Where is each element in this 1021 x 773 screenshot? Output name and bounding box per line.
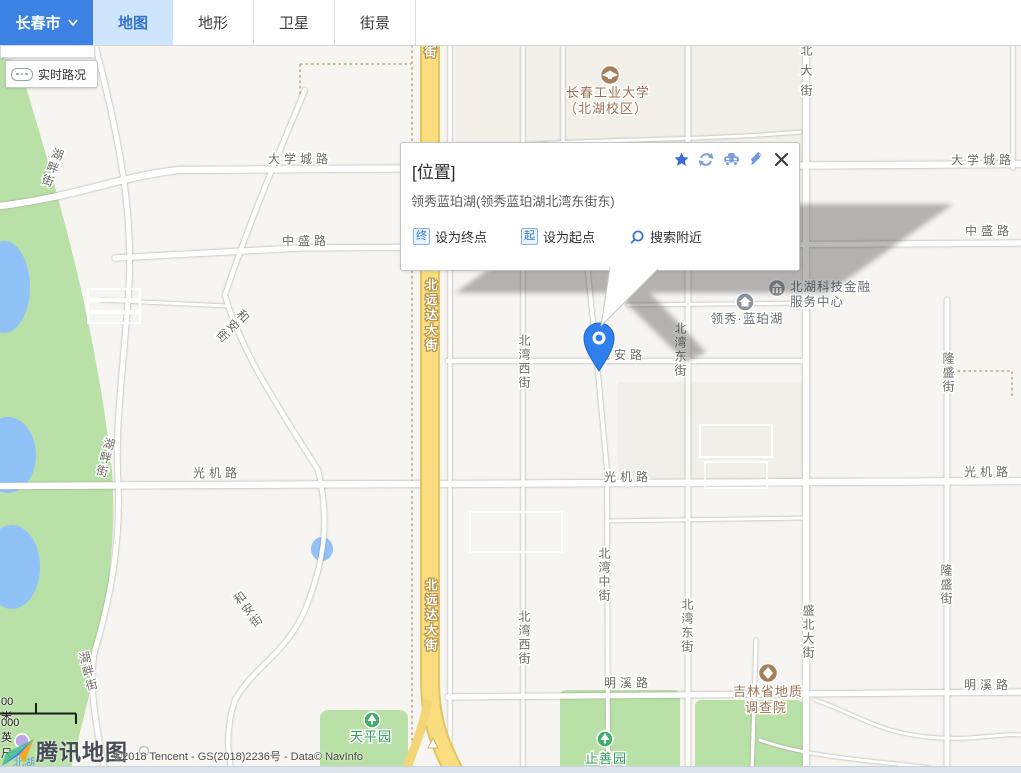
poi-geology-line2: 调查院: [745, 700, 787, 715]
set-destination-button[interactable]: 终 设为终点: [413, 227, 487, 246]
set-origin-button[interactable]: 起 设为起点: [521, 227, 595, 246]
map-label-beiyuanda-1: 北远达大街: [424, 277, 438, 353]
map-label-beiwandong-2: 北湾东街: [680, 598, 694, 654]
poi-lingxiu-label: 领秀·蓝珀湖: [711, 311, 784, 326]
poi-university-line1: 长春工业大学: [566, 85, 650, 100]
poi-zhishan-label: 止善园: [585, 751, 627, 766]
edit-pencil-icon[interactable]: [749, 151, 765, 167]
map-label-daxuecheng-e: 大学城路: [951, 152, 1015, 167]
map-label-longsheng-2: 隆盛街: [939, 563, 953, 606]
share-icon[interactable]: [698, 152, 714, 167]
tab-terrain[interactable]: 地形: [173, 0, 253, 45]
map-label-beiyuanda-2: 北远达大街: [424, 577, 438, 653]
traffic-ellipsis-icon: [11, 68, 33, 81]
map-label-mingxi-e: 明溪路: [964, 677, 1012, 692]
poi-geology-line1: 吉林省地质: [733, 684, 803, 699]
map-label-beiwanxi-1: 北湾西街: [517, 334, 531, 390]
location-info-popup: [位置] 领秀蓝珀湖(领秀蓝珀湖北湾东街东) 终 设为终点 起 设为起点 搜索附…: [400, 142, 800, 271]
search-nearby-button[interactable]: 搜索附近: [629, 227, 702, 246]
popup-tail: [594, 265, 666, 331]
map-label-guangji-e: 光机路: [964, 464, 1012, 479]
popup-title: [位置]: [412, 158, 455, 183]
city-selector-label: 长春市: [15, 12, 60, 33]
poi-tianping-label: 天平园: [350, 729, 392, 744]
map-copyright: ©2018 Tencent - GS(2018)2236号 - Data© Na…: [114, 748, 363, 764]
map-app: 大学城路 大学城路 中盛路 中盛路 湖畔街 湖畔街 湖畔街 和安街 和安街 北远…: [0, 0, 1021, 773]
origin-badge-icon: 起: [521, 228, 538, 245]
tab-streetview[interactable]: 街景: [335, 0, 415, 45]
map-label-mingxi-w: 明溪路: [604, 675, 652, 690]
search-icon: [629, 229, 645, 245]
map-label-zhongsheng-e: 中盛路: [965, 223, 1013, 238]
map-label-daxuecheng-w: 大学城路: [268, 151, 332, 166]
poi-university-line2: （北湖校区）: [564, 101, 648, 116]
map-label-jie-remnant: 街: [423, 44, 437, 60]
map-canvas[interactable]: 大学城路 大学城路 中盛路 中盛路 湖畔街 湖畔街 湖畔街 和安街 和安街 北远…: [0, 0, 1021, 773]
tencent-maps-logo-icon: [0, 733, 36, 769]
bottom-edge-strip: [0, 766, 1021, 773]
set-origin-label: 设为起点: [543, 227, 595, 246]
tab-separator: [415, 0, 416, 45]
map-label-zhongsheng-w: 中盛路: [282, 233, 330, 248]
popup-address: 领秀蓝珀湖(领秀蓝珀湖北湾东街东): [411, 191, 615, 210]
favorite-star-icon[interactable]: [674, 152, 689, 167]
set-destination-label: 设为终点: [435, 227, 487, 246]
popup-icon-bar: [674, 151, 789, 167]
map-label-beiwanzhong: 北湾中街: [597, 547, 611, 603]
residential-block: [618, 382, 810, 482]
top-toolbar: 长春市 地图 地形 卫星 街景: [0, 0, 1021, 46]
tab-map[interactable]: 地图: [93, 0, 173, 45]
city-selector[interactable]: 长春市: [0, 0, 93, 45]
city-dropdown-edge: [0, 45, 95, 58]
popup-actions: 终 设为终点 起 设为起点 搜索附近: [413, 227, 702, 246]
close-icon[interactable]: [774, 152, 789, 167]
map-label-guangji-w: 光机路: [193, 465, 241, 480]
realtime-traffic-toggle[interactable]: 实时路况: [5, 60, 98, 88]
chevron-down-icon: [68, 19, 78, 26]
map-label-longsheng-1: 隆盛街: [941, 351, 955, 394]
map-label-guangji-c: 光机路: [604, 469, 652, 484]
traffic-toggle-label: 实时路况: [38, 66, 86, 83]
poi-finance-line2: 服务中心: [790, 294, 844, 309]
search-nearby-label: 搜索附近: [650, 227, 702, 246]
tencent-maps-logo[interactable]: 腾讯地图: [0, 733, 128, 769]
tab-satellite[interactable]: 卫星: [254, 0, 334, 45]
map-label-shengbei-s: 盛北大街: [801, 603, 815, 660]
destination-badge-icon: 终: [413, 228, 430, 245]
map-label-beiwanxi-2: 北湾西街: [517, 610, 531, 666]
drive-route-car-icon[interactable]: [723, 152, 740, 166]
